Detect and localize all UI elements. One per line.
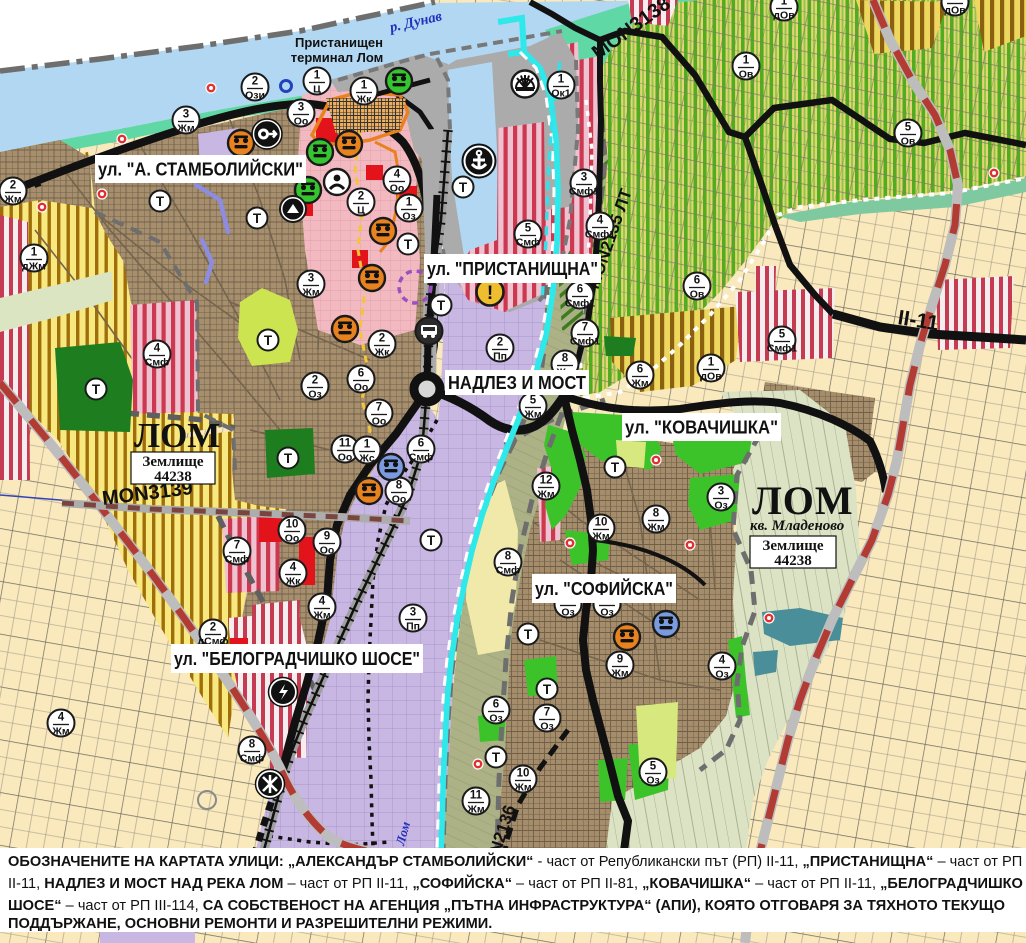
svg-text:Смф: Смф xyxy=(496,565,520,577)
svg-text:5: 5 xyxy=(779,329,786,341)
svg-text:8: 8 xyxy=(396,480,403,492)
svg-text:2: 2 xyxy=(10,180,16,192)
svg-text:Т: Т xyxy=(611,460,620,475)
svg-text:Оз: Оз xyxy=(489,713,502,725)
svg-text:1: 1 xyxy=(781,0,788,8)
svg-text:Т: Т xyxy=(543,682,552,697)
svg-text:3: 3 xyxy=(298,102,304,114)
svg-text:6: 6 xyxy=(694,275,700,287)
svg-text:Т: Т xyxy=(404,237,413,252)
svg-text:Пристанищен: Пристанищен xyxy=(295,35,383,50)
svg-text:Смф1: Смф1 xyxy=(570,336,600,348)
svg-text:1: 1 xyxy=(314,70,321,82)
svg-text:Оо: Оо xyxy=(338,452,353,464)
svg-text:11: 11 xyxy=(339,438,352,450)
svg-text:7: 7 xyxy=(544,707,550,719)
svg-text:НАДЛЕЗ И МОСТ: НАДЛЕЗ И МОСТ xyxy=(448,373,586,393)
svg-text:Жм: Жм xyxy=(630,378,648,390)
svg-text:Землище: Землище xyxy=(142,454,204,470)
svg-text:6: 6 xyxy=(418,438,424,450)
svg-text:Т: Т xyxy=(156,194,165,209)
svg-text:1: 1 xyxy=(31,247,38,259)
svg-text:Оо: Оо xyxy=(294,116,309,128)
svg-text:Оо: Оо xyxy=(372,416,387,428)
svg-text:9: 9 xyxy=(617,654,623,666)
svg-text:2: 2 xyxy=(312,375,318,387)
svg-text:Оз: Оз xyxy=(646,775,659,787)
svg-text:Т: Т xyxy=(437,298,446,313)
svg-text:5: 5 xyxy=(530,395,537,407)
svg-text:ШОСЕ“ – част от РП III-114, СА: ШОСЕ“ – част от РП III-114, СА СОБСТВЕНО… xyxy=(8,898,1005,914)
svg-text:4: 4 xyxy=(154,343,161,355)
svg-text:3: 3 xyxy=(581,172,587,184)
svg-text:дЖм: дЖм xyxy=(22,261,46,273)
svg-text:5: 5 xyxy=(650,761,657,773)
svg-text:дОв: дОв xyxy=(944,5,966,17)
svg-text:Жм: Жм xyxy=(610,668,628,680)
svg-text:4: 4 xyxy=(597,215,604,227)
svg-text:Жм: Жм xyxy=(301,287,319,299)
svg-text:10: 10 xyxy=(517,768,530,780)
svg-text:Жм: Жм xyxy=(466,804,484,816)
svg-text:Т: Т xyxy=(427,533,436,548)
svg-text:Смф: Смф xyxy=(240,753,264,765)
svg-text:Смф: Смф xyxy=(225,554,249,566)
svg-text:ул. "СОФИЙСКА": ул. "СОФИЙСКА" xyxy=(535,578,673,599)
svg-text:Ц: Ц xyxy=(357,205,365,217)
svg-text:4: 4 xyxy=(719,655,726,667)
svg-text:Оз: Оз xyxy=(561,607,574,619)
svg-text:Т: Т xyxy=(284,451,293,466)
svg-text:Жм: Жм xyxy=(513,782,531,794)
svg-text:6: 6 xyxy=(637,364,643,376)
svg-text:Т: Т xyxy=(492,750,501,765)
svg-text:ОБОЗНАЧЕНИТЕ НА КАРТАТА УЛИЦИ:: ОБОЗНАЧЕНИТЕ НА КАРТАТА УЛИЦИ: „АЛЕКСАНД… xyxy=(8,852,1022,870)
svg-text:Ов: Ов xyxy=(690,289,705,301)
svg-text:6: 6 xyxy=(577,284,583,296)
svg-text:Смф1: Смф1 xyxy=(565,298,595,310)
svg-text:Жк: Жк xyxy=(285,576,301,588)
svg-text:Жс: Жс xyxy=(358,453,374,465)
svg-text:Жм: Жм xyxy=(536,489,554,501)
svg-text:ул. "КОВАЧИШКА": ул. "КОВАЧИШКА" xyxy=(625,418,778,438)
svg-text:Смф1: Смф1 xyxy=(767,343,797,355)
svg-text:Оо: Оо xyxy=(390,183,405,195)
svg-text:Ози: Ози xyxy=(245,90,265,102)
svg-text:1: 1 xyxy=(558,74,565,86)
svg-text:2: 2 xyxy=(497,337,503,349)
svg-text:4: 4 xyxy=(319,596,326,608)
svg-text:дОв: дОв xyxy=(700,371,722,383)
svg-text:6: 6 xyxy=(493,699,499,711)
svg-text:1: 1 xyxy=(364,439,371,451)
svg-text:Оо: Оо xyxy=(320,545,335,557)
svg-text:4: 4 xyxy=(290,562,297,574)
svg-text:9: 9 xyxy=(324,531,330,543)
svg-text:6: 6 xyxy=(358,368,364,380)
svg-text:ЛОМ: ЛОМ xyxy=(752,478,854,523)
svg-text:4: 4 xyxy=(58,712,65,724)
svg-text:2: 2 xyxy=(252,76,258,88)
svg-text:7: 7 xyxy=(234,540,240,552)
svg-text:Ок1: Ок1 xyxy=(551,88,570,100)
svg-text:Оз: Оз xyxy=(600,607,613,619)
svg-text:Жм: Жм xyxy=(523,409,541,421)
svg-text:ЛОМ: ЛОМ xyxy=(134,416,220,455)
svg-text:Т: Т xyxy=(264,333,273,348)
svg-text:8: 8 xyxy=(505,551,512,563)
svg-text:Оз: Оз xyxy=(714,500,727,512)
svg-text:ПОДДЪРЖАНЕ, ОСНОВНИ РЕМОНТИ И: ПОДДЪРЖАНЕ, ОСНОВНИ РЕМОНТИ И РАЗРЕШИТЕЛ… xyxy=(8,916,492,932)
svg-text:3: 3 xyxy=(410,607,416,619)
svg-text:2: 2 xyxy=(358,191,364,203)
svg-text:3: 3 xyxy=(718,486,724,498)
svg-text:Смф: Смф xyxy=(516,237,540,249)
svg-text:Оз: Оз xyxy=(715,669,728,681)
svg-text:Оз: Оз xyxy=(308,389,321,401)
svg-text:Смф: Смф xyxy=(409,452,433,464)
svg-text:2: 2 xyxy=(379,333,385,345)
svg-text:Смф1: Смф1 xyxy=(569,186,599,198)
svg-text:7: 7 xyxy=(376,402,382,414)
svg-text:Т: Т xyxy=(524,627,533,642)
svg-text:Оз: Оз xyxy=(402,211,415,223)
svg-text:Смф1: Смф1 xyxy=(585,229,615,241)
svg-text:Т: Т xyxy=(459,180,468,195)
svg-text:Оо: Оо xyxy=(285,533,300,545)
svg-text:3: 3 xyxy=(308,273,314,285)
svg-text:Ц: Ц xyxy=(313,84,321,96)
svg-text:ул. "БЕЛОГРАДЧИШКО ШОСЕ": ул. "БЕЛОГРАДЧИШКО ШОСЕ" xyxy=(174,649,420,669)
svg-text:Жк: Жк xyxy=(356,94,372,106)
svg-text:Оо: Оо xyxy=(392,494,407,506)
svg-text:1: 1 xyxy=(708,357,715,369)
svg-text:Жм: Жм xyxy=(3,194,21,206)
svg-text:2: 2 xyxy=(210,622,216,634)
svg-text:5: 5 xyxy=(905,122,912,134)
svg-text:Жм: Жм xyxy=(51,726,69,738)
svg-text:!: ! xyxy=(487,283,493,304)
svg-text:1: 1 xyxy=(743,55,750,67)
svg-text:1: 1 xyxy=(406,197,413,209)
svg-text:Ов: Ов xyxy=(739,69,754,81)
svg-text:7: 7 xyxy=(582,322,588,334)
svg-text:Ов: Ов xyxy=(901,136,916,148)
svg-text:3: 3 xyxy=(183,109,189,121)
svg-text:Т: Т xyxy=(92,382,101,397)
svg-text:10: 10 xyxy=(286,519,299,531)
svg-text:дОв: дОв xyxy=(773,10,795,22)
svg-text:1: 1 xyxy=(952,0,959,3)
svg-text:1: 1 xyxy=(361,80,368,92)
svg-text:4: 4 xyxy=(394,169,401,181)
svg-text:12: 12 xyxy=(540,475,553,487)
svg-text:Землище: Землище xyxy=(762,538,824,554)
svg-text:II-11, НАДЛЕЗ И МОСТ НАД РЕКА: II-11, НАДЛЕЗ И МОСТ НАД РЕКА ЛОМ – част… xyxy=(8,874,1023,892)
svg-text:8: 8 xyxy=(562,353,569,365)
svg-text:5: 5 xyxy=(525,223,532,235)
svg-text:Жк: Жк xyxy=(374,347,390,359)
svg-text:Пп: Пп xyxy=(406,621,420,633)
svg-text:кв. Младеново: кв. Младеново xyxy=(750,518,844,534)
svg-text:ул. "А. СТАМБОЛИЙСКИ": ул. "А. СТАМБОЛИЙСКИ" xyxy=(98,159,303,180)
svg-text:Пп: Пп xyxy=(493,351,507,363)
svg-text:8: 8 xyxy=(653,508,660,520)
svg-text:44238: 44238 xyxy=(154,469,192,485)
svg-text:Жм: Жм xyxy=(591,531,609,543)
svg-text:Жм: Жм xyxy=(176,123,194,135)
svg-text:Жм: Жм xyxy=(312,610,330,622)
svg-text:11: 11 xyxy=(470,790,483,802)
svg-text:Оо: Оо xyxy=(354,382,369,394)
svg-text:Смф: Смф xyxy=(145,357,169,369)
svg-text:Жм: Жм xyxy=(646,522,664,534)
svg-text:ул. "ПРИСТАНИЩНА": ул. "ПРИСТАНИЩНА" xyxy=(427,259,598,279)
svg-text:Оз: Оз xyxy=(540,721,553,733)
svg-text:8: 8 xyxy=(249,739,256,751)
svg-text:10: 10 xyxy=(595,517,608,529)
svg-text:44238: 44238 xyxy=(774,553,812,569)
svg-text:терминал Лом: терминал Лом xyxy=(291,50,383,65)
svg-text:Т: Т xyxy=(253,211,262,226)
